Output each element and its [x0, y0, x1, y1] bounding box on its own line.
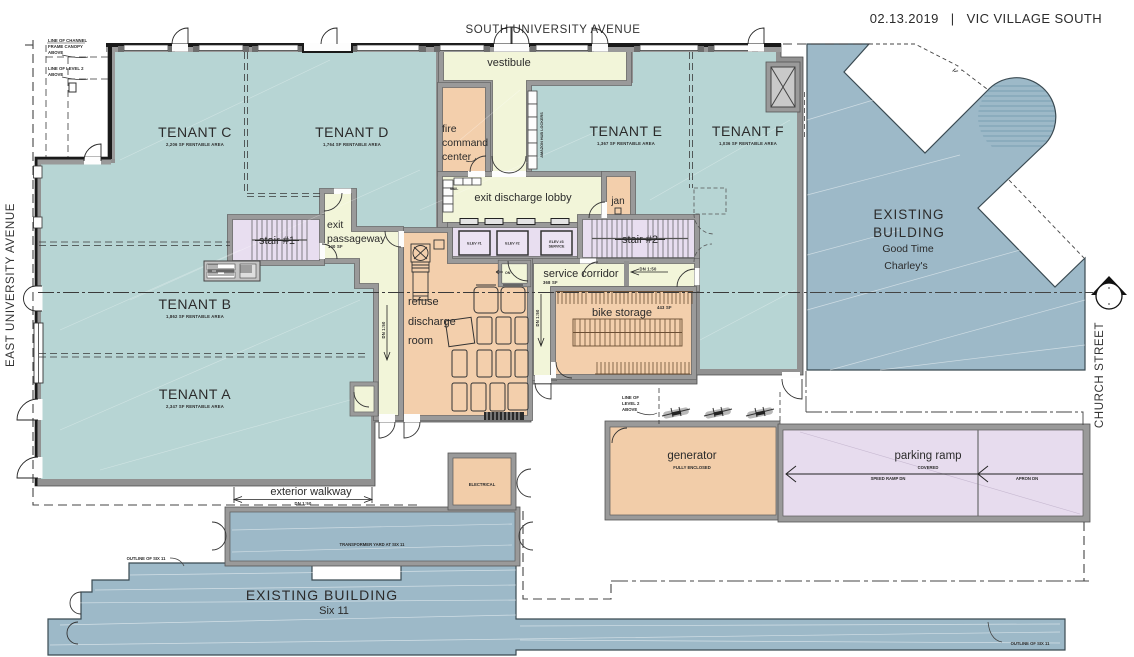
svg-text:ELECTRICAL: ELECTRICAL — [469, 482, 496, 487]
svg-text:LEVEL 2: LEVEL 2 — [622, 401, 640, 406]
svg-text:02.13.2019 | VIC VILLAGE S: 02.13.2019 | VIC VILLAGE SOUTH — [870, 11, 1102, 26]
svg-text:TRANSFORMER YARD AT SIX 11: TRANSFORMER YARD AT SIX 11 — [340, 542, 406, 547]
svg-text:1,764 SF RENTABLE AREA: 1,764 SF RENTABLE AREA — [323, 142, 381, 147]
svg-text:BUILDING: BUILDING — [873, 225, 945, 240]
svg-text:DN 1:50: DN 1:50 — [640, 267, 657, 272]
svg-text:TENANT A: TENANT A — [159, 386, 231, 402]
svg-text:SPEED RAMP DN: SPEED RAMP DN — [871, 476, 906, 481]
svg-text:COVERED: COVERED — [918, 465, 939, 470]
svg-text:SERVICE: SERVICE — [549, 245, 565, 249]
svg-text:368 SF: 368 SF — [543, 280, 558, 285]
svg-text:OUTLINE OF SIX 11: OUTLINE OF SIX 11 — [127, 556, 167, 561]
svg-text:TENANT C: TENANT C — [158, 124, 232, 140]
svg-text:SOUTH UNIVERSITY AVENUE: SOUTH UNIVERSITY AVENUE — [465, 24, 640, 36]
svg-text:refuse: refuse — [408, 296, 439, 308]
svg-text:CHURCH STREET: CHURCH STREET — [1094, 322, 1106, 428]
svg-text:1,036 SF RENTABLE AREA: 1,036 SF RENTABLE AREA — [719, 141, 777, 146]
svg-text:discharge: discharge — [408, 316, 456, 328]
svg-text:TENANT B: TENANT B — [159, 296, 232, 312]
svg-text:ABOVE: ABOVE — [622, 407, 637, 412]
svg-text:1,367 SF RENTABLE AREA: 1,367 SF RENTABLE AREA — [597, 141, 655, 146]
svg-text:TENANT E: TENANT E — [590, 123, 663, 139]
svg-text:bike storage: bike storage — [592, 307, 652, 319]
svg-text:EAST UNIVERSITY AVENUE: EAST UNIVERSITY AVENUE — [5, 203, 17, 367]
svg-text:jan: jan — [610, 196, 624, 207]
svg-text:EXISTING: EXISTING — [873, 207, 944, 222]
svg-text:ON: ON — [505, 271, 511, 275]
svg-text:LINE OF CHANNEL: LINE OF CHANNEL — [48, 38, 88, 43]
svg-text:service corridor: service corridor — [543, 268, 619, 280]
svg-text:generator: generator — [667, 450, 716, 462]
svg-text:DN 1:50: DN 1:50 — [295, 501, 312, 506]
svg-text:LINE OF: LINE OF — [622, 395, 639, 400]
svg-text:DN 1:50: DN 1:50 — [535, 309, 540, 326]
svg-text:exit: exit — [327, 219, 343, 231]
svg-text:MAIL: MAIL — [450, 187, 458, 191]
svg-text:2,347 SF RENTABLE AREA: 2,347 SF RENTABLE AREA — [166, 404, 224, 409]
svg-text:parking ramp: parking ramp — [894, 450, 961, 462]
svg-text:1,862 SF RENTABLE AREA: 1,862 SF RENTABLE AREA — [166, 314, 224, 319]
svg-text:ELEV #1: ELEV #1 — [467, 242, 481, 246]
svg-text:140 SF: 140 SF — [328, 244, 343, 249]
svg-text:ABOVE: ABOVE — [48, 50, 63, 55]
svg-text:OUTLINE OF SIX 11: OUTLINE OF SIX 11 — [1011, 641, 1051, 646]
svg-text:FULLY ENCLOSED: FULLY ENCLOSED — [673, 465, 710, 470]
svg-text:FRAME CANOPY: FRAME CANOPY — [48, 44, 83, 49]
svg-text:Six 11: Six 11 — [319, 605, 349, 617]
svg-text:Charley's: Charley's — [884, 260, 927, 272]
svg-text:exit discharge lobby: exit discharge lobby — [474, 192, 572, 204]
svg-text:2,206 SF RENTABLE AREA: 2,206 SF RENTABLE AREA — [166, 142, 224, 147]
svg-text:AMAZON HUB LOCKERS: AMAZON HUB LOCKERS — [540, 112, 544, 158]
svg-text:DN 1:50: DN 1:50 — [381, 321, 386, 338]
svg-text:TENANT F: TENANT F — [712, 123, 784, 139]
svg-text:LINE OF LEVEL 2: LINE OF LEVEL 2 — [48, 66, 84, 71]
svg-text:APRON DN: APRON DN — [1016, 476, 1038, 481]
svg-text:ELEV #2: ELEV #2 — [505, 242, 519, 246]
svg-text:vestibule: vestibule — [487, 57, 530, 69]
svg-text:EXISTING BUILDING: EXISTING BUILDING — [246, 587, 398, 603]
svg-text:fire: fire — [442, 123, 457, 135]
svg-text:ELEV #3: ELEV #3 — [549, 240, 563, 244]
svg-text:exterior walkway: exterior walkway — [270, 486, 352, 498]
svg-text:Good Time: Good Time — [882, 243, 934, 255]
svg-text:TENANT D: TENANT D — [315, 124, 389, 140]
svg-text:room: room — [408, 335, 433, 347]
svg-text:443 SF: 443 SF — [657, 305, 672, 310]
svg-text:ABOVE: ABOVE — [48, 72, 63, 77]
svg-text:command: command — [442, 137, 488, 149]
